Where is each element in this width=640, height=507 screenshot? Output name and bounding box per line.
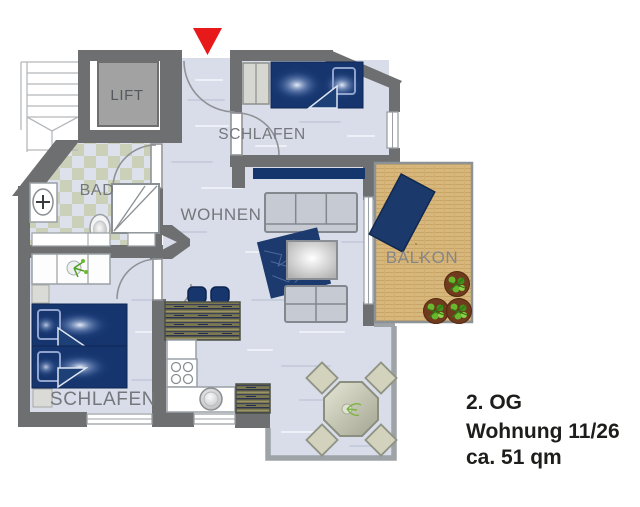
sideboard: [253, 168, 365, 179]
dresser: [32, 254, 110, 284]
entrance-arrow-icon: [193, 28, 222, 55]
window: [87, 414, 152, 424]
stove-icon: [167, 359, 197, 387]
bath-door-leaf: [151, 144, 162, 188]
annotation-floor: 2. OG: [466, 390, 620, 416]
bed: [32, 346, 127, 388]
washbasin-icon: [30, 183, 57, 222]
sink-icon: [167, 387, 235, 412]
room-label-wohnen: WOHNEN: [180, 205, 261, 225]
coffee-table: [287, 241, 337, 279]
window: [387, 112, 398, 148]
kitchen-cabinet: [167, 340, 196, 360]
nightstand: [32, 285, 49, 303]
potted-plant-icon: [447, 299, 472, 324]
dining-chair: [211, 287, 229, 303]
bed: [32, 304, 127, 347]
loveseat: [285, 286, 347, 322]
floor-plan: LIFT BAD WOHNEN SCHLAFEN SCHLAFEN BALKON…: [0, 0, 640, 507]
room-label-schlafen-bottom: SCHLAFEN: [50, 389, 156, 411]
room-label-bad: BAD: [80, 182, 115, 200]
room-label-lift: LIFT: [110, 87, 143, 104]
bed: [267, 62, 364, 108]
shower: [112, 184, 159, 233]
potted-plant-icon: [424, 299, 449, 324]
room-label-balkon: BALKON: [386, 248, 459, 268]
wardrobe: [243, 63, 269, 104]
potted-plant-icon: [445, 272, 470, 297]
dining-chair: [188, 287, 206, 303]
balcony-glass-door: [364, 197, 373, 304]
annotation-unit: Wohnung 11/26: [466, 419, 620, 445]
annotation-area: ca. 51 qm: [466, 445, 620, 471]
room-label-schlafen-top: SCHLAFEN: [218, 126, 305, 144]
bedroom-top-furniture: [243, 62, 364, 108]
dining-table: [165, 302, 240, 340]
balcony: [369, 163, 472, 324]
bath-counter: [32, 233, 155, 246]
sofa: [265, 193, 357, 232]
stairs: [21, 62, 78, 152]
bedroom2-door-leaf: [153, 259, 162, 300]
plan-annotation: 2. OG Wohnung 11/26 ca. 51 qm: [466, 390, 620, 471]
kitchen-sideboard: [236, 384, 270, 413]
window: [194, 414, 235, 424]
